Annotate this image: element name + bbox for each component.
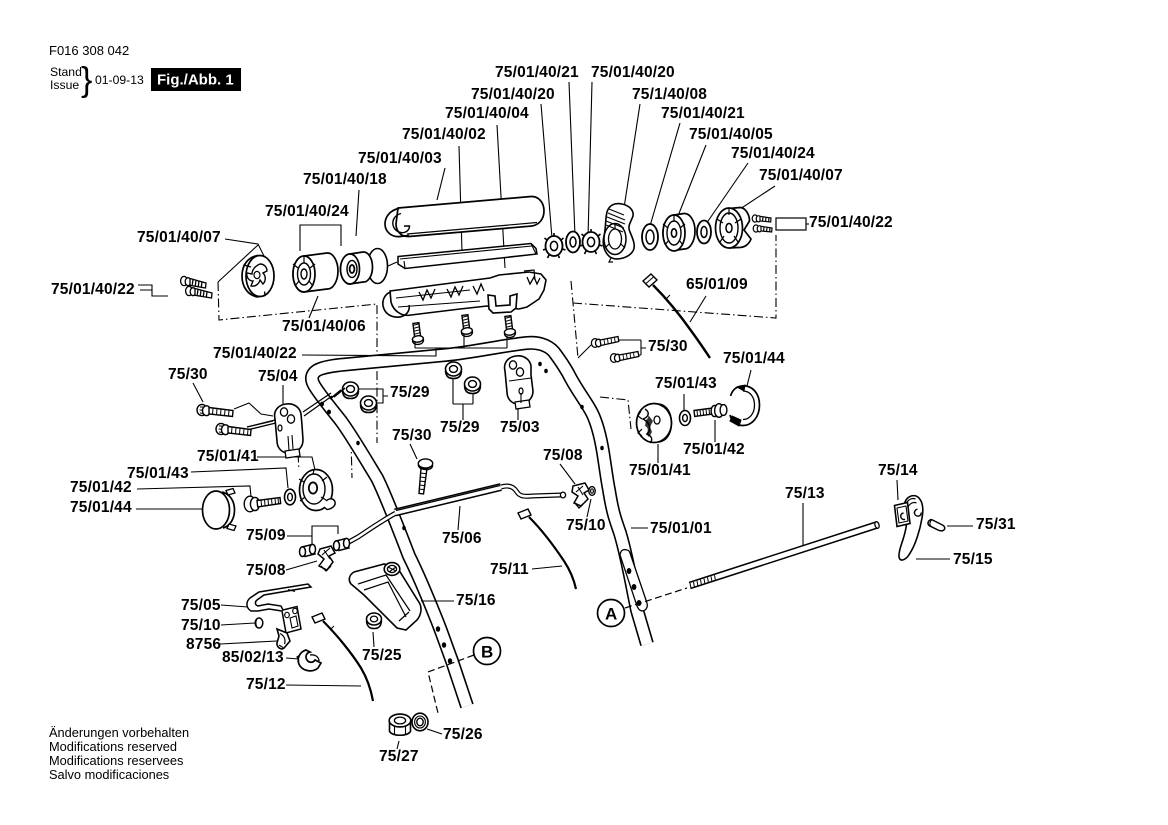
svg-text:75/01/44: 75/01/44 — [70, 499, 132, 516]
svg-text:75/15: 75/15 — [953, 551, 993, 568]
svg-text:Issue: Issue — [50, 78, 79, 92]
svg-text:75/10: 75/10 — [566, 517, 606, 534]
svg-text:}: } — [81, 61, 92, 99]
svg-text:Stand: Stand — [50, 65, 82, 79]
svg-text:75/01/40/20: 75/01/40/20 — [591, 64, 675, 81]
svg-text:75/01/40/07: 75/01/40/07 — [137, 229, 221, 246]
svg-text:A: A — [605, 605, 617, 624]
svg-text:01-09-13: 01-09-13 — [95, 73, 144, 87]
svg-text:75/01/40/24: 75/01/40/24 — [731, 145, 815, 162]
svg-text:75/01/40/24: 75/01/40/24 — [265, 203, 349, 220]
svg-text:75/01/43: 75/01/43 — [127, 465, 189, 482]
svg-text:Salvo modificaciones: Salvo modificaciones — [49, 767, 169, 782]
svg-text:75/01/01: 75/01/01 — [650, 520, 712, 537]
svg-text:75/01/41: 75/01/41 — [629, 462, 691, 479]
svg-text:75/16: 75/16 — [456, 592, 496, 609]
svg-text:75/06: 75/06 — [442, 530, 482, 547]
svg-text:75/01/40/22: 75/01/40/22 — [809, 214, 893, 231]
svg-text:75/14: 75/14 — [878, 462, 918, 479]
svg-text:75/04: 75/04 — [258, 368, 298, 385]
svg-text:Modifications reserved: Modifications reserved — [49, 739, 177, 754]
svg-text:Änderungen vorbehalten: Änderungen vorbehalten — [49, 725, 189, 740]
svg-text:75/10: 75/10 — [181, 617, 221, 634]
svg-text:75/01/42: 75/01/42 — [683, 441, 745, 458]
svg-text:75/11: 75/11 — [490, 561, 529, 578]
svg-text:85/02/13: 85/02/13 — [222, 649, 284, 666]
svg-text:75/1/40/08: 75/1/40/08 — [632, 86, 707, 103]
svg-text:75/01/40/06: 75/01/40/06 — [282, 318, 366, 335]
svg-text:75/01/40/22: 75/01/40/22 — [51, 281, 135, 298]
svg-text:65/01/09: 65/01/09 — [686, 276, 748, 293]
svg-text:75/01/40/07: 75/01/40/07 — [759, 167, 843, 184]
svg-text:75/30: 75/30 — [648, 338, 688, 355]
svg-text:8756: 8756 — [186, 636, 221, 653]
svg-text:75/29: 75/29 — [440, 419, 480, 436]
svg-text:75/01/40/04: 75/01/40/04 — [445, 105, 529, 122]
svg-text:75/01/44: 75/01/44 — [723, 350, 785, 367]
svg-text:75/01/40/20: 75/01/40/20 — [471, 86, 555, 103]
svg-text:75/12: 75/12 — [246, 676, 286, 693]
svg-text:75/01/41: 75/01/41 — [197, 448, 259, 465]
svg-text:75/31: 75/31 — [976, 516, 1016, 533]
svg-text:B: B — [481, 643, 493, 662]
svg-text:75/13: 75/13 — [785, 485, 825, 502]
svg-text:Modifications reservees: Modifications reservees — [49, 753, 183, 768]
svg-text:75/30: 75/30 — [392, 427, 432, 444]
svg-text:75/01/40/21: 75/01/40/21 — [495, 64, 579, 81]
svg-text:75/01/40/02: 75/01/40/02 — [402, 126, 486, 143]
svg-text:75/01/40/22: 75/01/40/22 — [213, 345, 297, 362]
svg-text:75/29: 75/29 — [390, 384, 430, 401]
svg-text:75/01/43: 75/01/43 — [655, 375, 717, 392]
svg-text:75/30: 75/30 — [168, 366, 208, 383]
svg-text:Fig./Abb. 1: Fig./Abb. 1 — [157, 72, 234, 89]
svg-text:75/03: 75/03 — [500, 419, 540, 436]
svg-text:75/27: 75/27 — [379, 748, 419, 765]
svg-text:75/01/40/05: 75/01/40/05 — [689, 126, 773, 143]
svg-text:75/01/40/21: 75/01/40/21 — [661, 105, 745, 122]
svg-text:75/25: 75/25 — [362, 647, 402, 664]
svg-text:F016 308 042: F016 308 042 — [49, 43, 129, 58]
svg-text:75/01/40/03: 75/01/40/03 — [358, 150, 442, 167]
svg-text:75/01/40/18: 75/01/40/18 — [303, 171, 387, 188]
svg-text:75/05: 75/05 — [181, 597, 221, 614]
svg-text:75/08: 75/08 — [543, 447, 583, 464]
svg-text:75/01/42: 75/01/42 — [70, 479, 132, 496]
svg-text:75/26: 75/26 — [443, 726, 483, 743]
svg-text:75/08: 75/08 — [246, 562, 286, 579]
svg-text:75/09: 75/09 — [246, 527, 286, 544]
